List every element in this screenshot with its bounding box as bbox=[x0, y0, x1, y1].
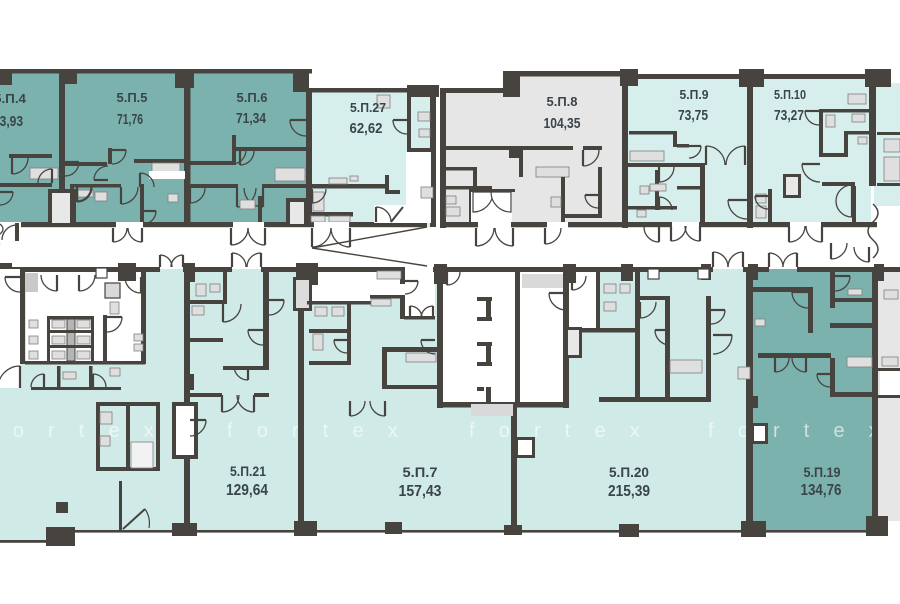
svg-text:5.П.4: 5.П.4 bbox=[0, 91, 27, 106]
svg-text:71,34: 71,34 bbox=[236, 110, 267, 127]
svg-text:215,39: 215,39 bbox=[608, 483, 650, 500]
svg-text:5.П.21: 5.П.21 bbox=[230, 464, 266, 479]
svg-text:5.П.6: 5.П.6 bbox=[237, 90, 268, 105]
svg-text:f o r t e x: f o r t e x bbox=[708, 420, 888, 442]
svg-text:5.П.8: 5.П.8 bbox=[547, 94, 578, 109]
svg-text:73,75: 73,75 bbox=[678, 107, 708, 124]
svg-text:73,93: 73,93 bbox=[0, 113, 23, 130]
svg-text:5.П.7: 5.П.7 bbox=[403, 465, 438, 480]
svg-text:5.П.5: 5.П.5 bbox=[117, 90, 148, 105]
svg-text:157,43: 157,43 bbox=[399, 483, 442, 500]
svg-text:5.П.27: 5.П.27 bbox=[350, 100, 386, 115]
svg-text:5.П.20: 5.П.20 bbox=[609, 465, 649, 480]
svg-text:71,76: 71,76 bbox=[117, 111, 143, 128]
svg-text:62,62: 62,62 bbox=[350, 120, 383, 137]
svg-text:f o r t e x: f o r t e x bbox=[227, 420, 407, 442]
svg-text:f o r t e x: f o r t e x bbox=[469, 420, 649, 442]
svg-text:5.П.9: 5.П.9 bbox=[680, 87, 709, 102]
svg-text:134,76: 134,76 bbox=[801, 482, 842, 499]
svg-text:5.П.19: 5.П.19 bbox=[804, 465, 841, 480]
svg-text:104,35: 104,35 bbox=[544, 115, 581, 132]
svg-text:5.П.10: 5.П.10 bbox=[774, 87, 806, 102]
svg-text:129,64: 129,64 bbox=[226, 482, 268, 499]
svg-text:73,27: 73,27 bbox=[774, 107, 804, 124]
svg-text:f o r t e x: f o r t e x bbox=[0, 420, 163, 442]
